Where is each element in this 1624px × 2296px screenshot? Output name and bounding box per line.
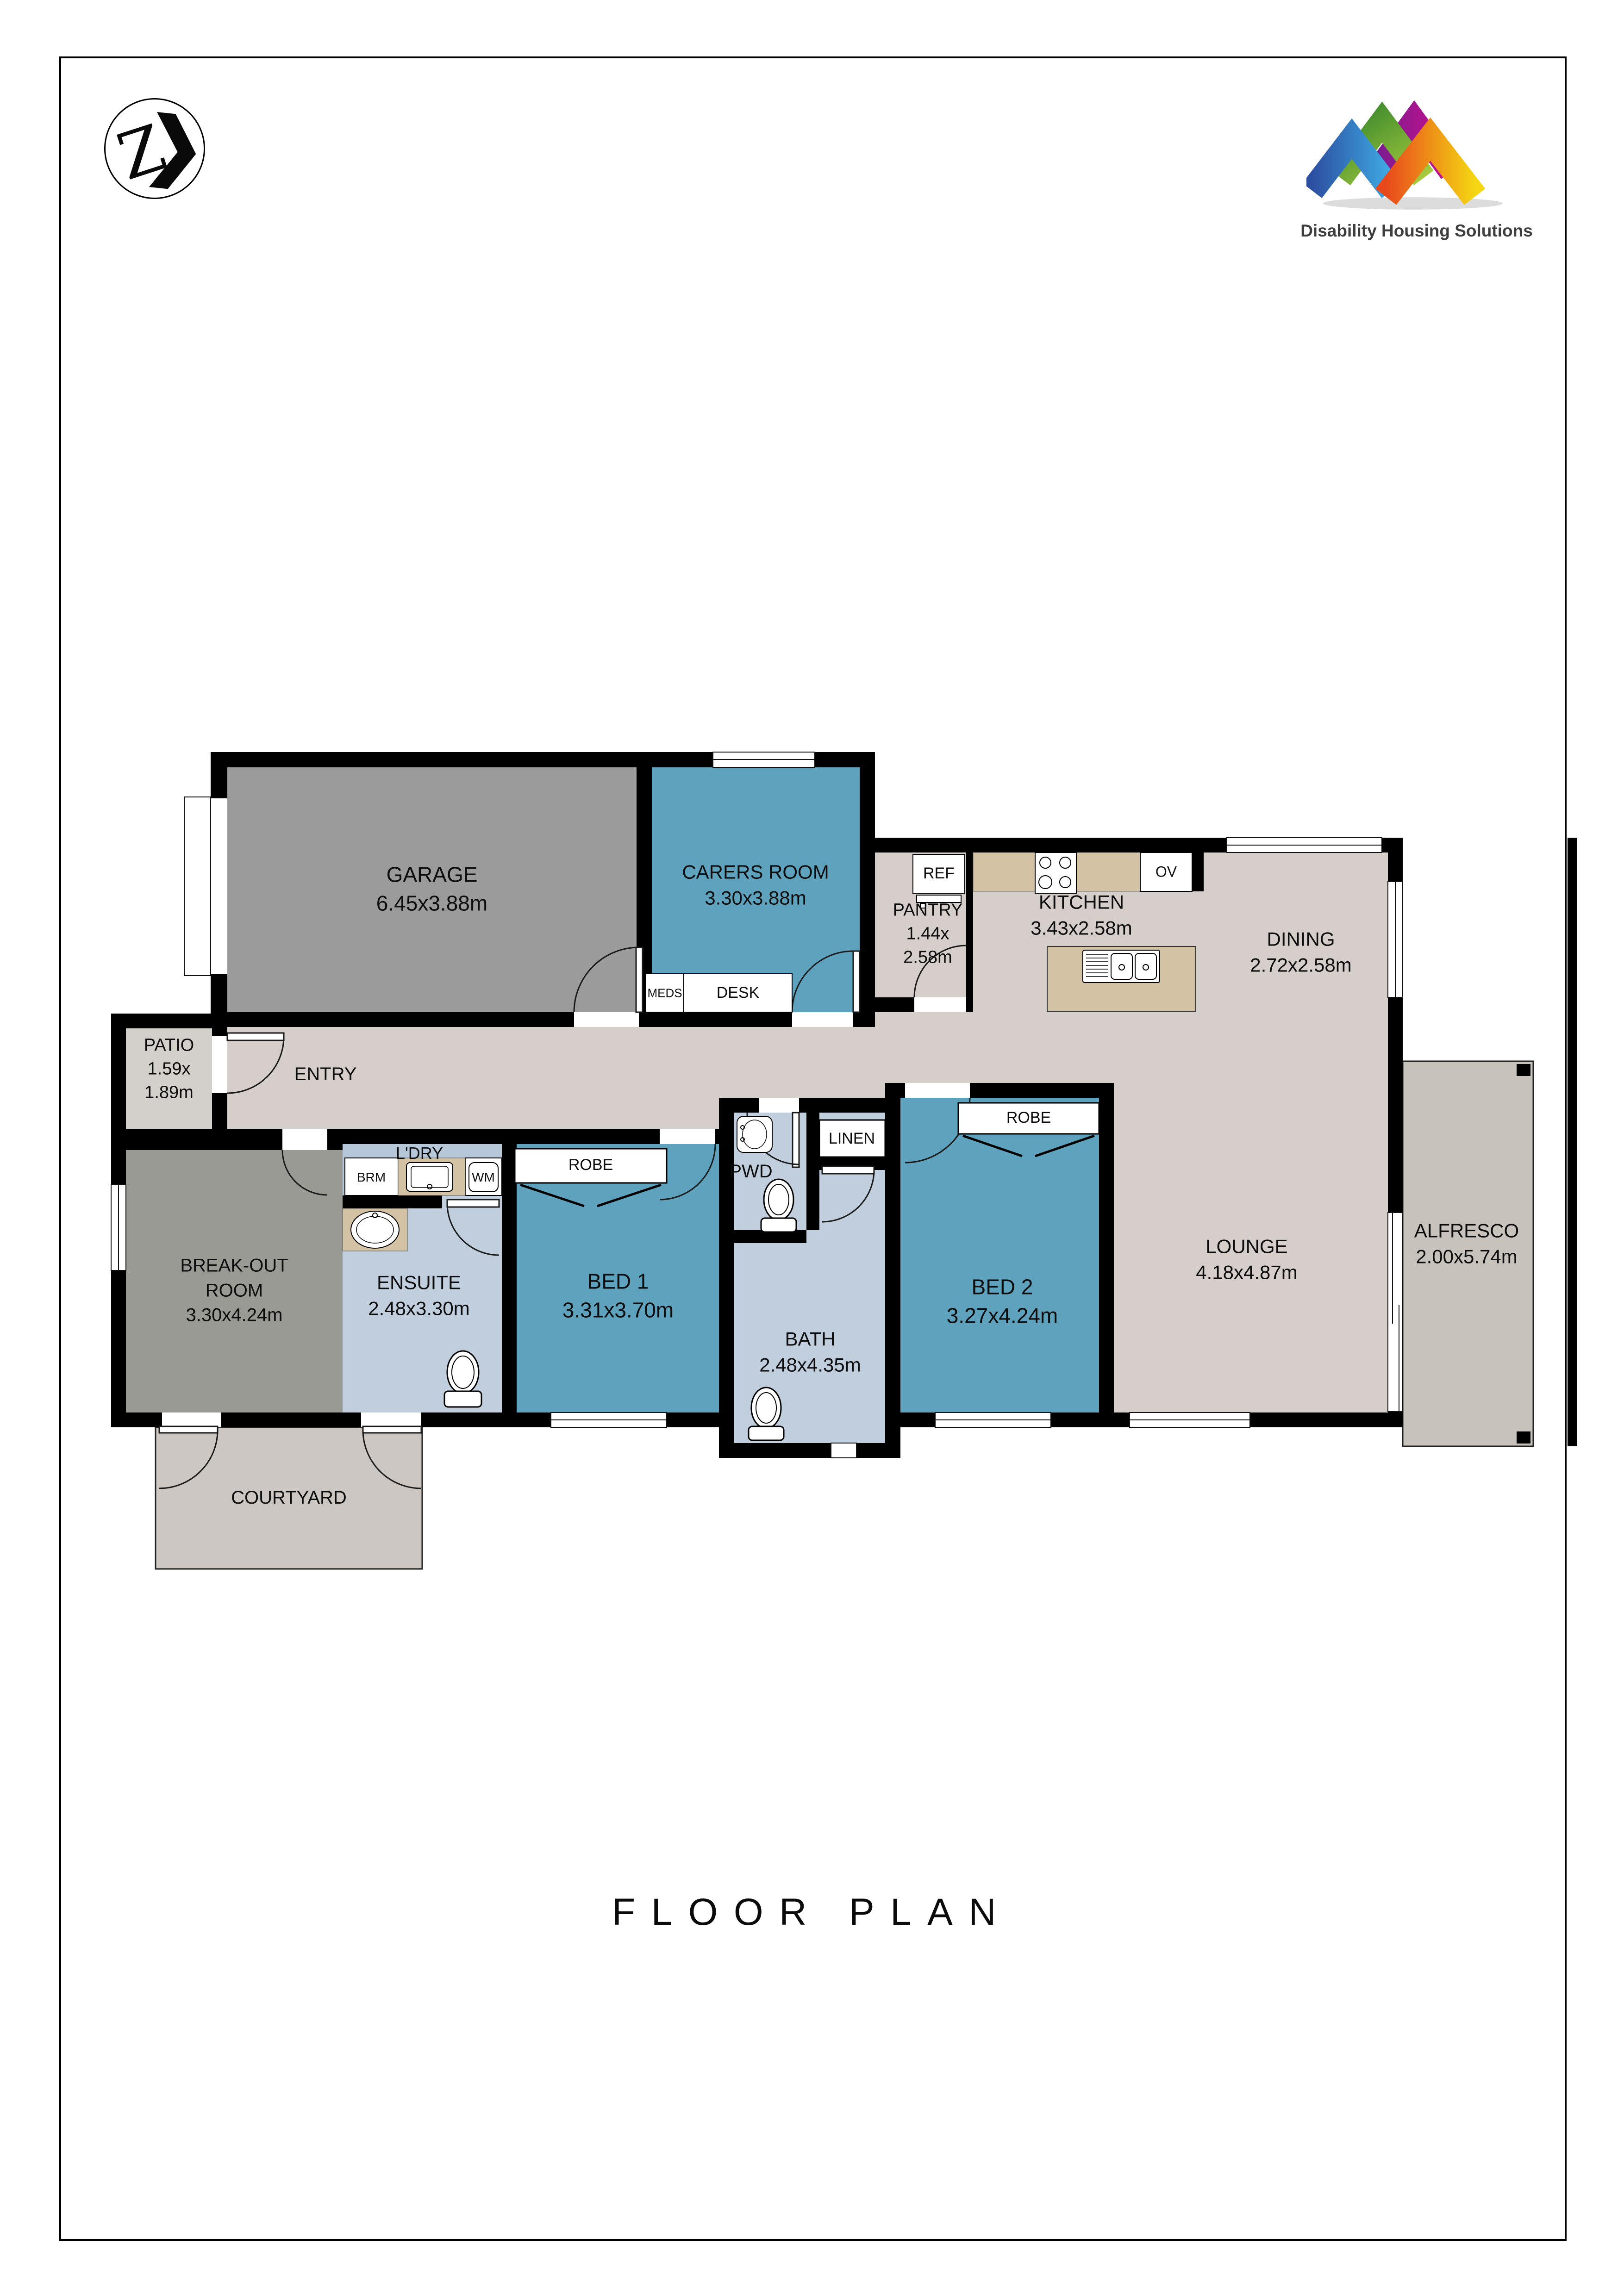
- sliding-door: [1388, 1213, 1403, 1412]
- room-label-garage: GARAGE6.45x3.88m: [376, 860, 487, 917]
- room-label-courtyard: COURTYARD: [231, 1486, 347, 1511]
- toilet-icon: [761, 1179, 796, 1232]
- room-label-breakout: BREAK-OUT ROOM3.30x4.24m: [180, 1254, 288, 1328]
- robe-label-bed1: ROBE: [568, 1155, 613, 1176]
- room-label-patio: PATIO1.59x 1.89m: [144, 1034, 194, 1105]
- room-label-entry: ENTRY: [294, 1062, 357, 1087]
- room-label-ensuite: ENSUITE2.48x3.30m: [368, 1270, 469, 1322]
- room-label-pantry: PANTRY1.44x 2.58m: [893, 899, 963, 970]
- sink-icon: [1083, 950, 1160, 983]
- room-label-carers: CARERS ROOM3.30x3.88m: [682, 859, 829, 912]
- washer-label: WM: [472, 1169, 495, 1186]
- room-label-dining: DINING2.72x2.58m: [1250, 927, 1351, 979]
- room-label-lounge: LOUNGE4.18x4.87m: [1196, 1234, 1297, 1286]
- toilet-icon: [444, 1351, 481, 1407]
- meds-label: MEDS: [647, 985, 682, 1002]
- room-label-laundry: L'DRY: [396, 1142, 443, 1164]
- room-label-bath: BATH2.48x4.35m: [759, 1326, 861, 1379]
- boundary-line: [1568, 838, 1577, 1446]
- robe-label-bed2: ROBE: [1006, 1108, 1051, 1129]
- bath-fixtures: [749, 1388, 784, 1440]
- room-label-bed2: BED 23.27x4.24m: [947, 1273, 1058, 1330]
- room-label-pwd: PWD: [729, 1159, 772, 1184]
- broom-label: BRM: [357, 1169, 386, 1186]
- room-label-kitchen: KITCHEN3.43x2.58m: [1031, 890, 1132, 942]
- floor-plan-drawing: [0, 0, 1624, 2296]
- room-label-alfresco: ALFRESCO2.00x5.74m: [1414, 1218, 1519, 1270]
- room-label-linen: LINEN: [829, 1128, 875, 1150]
- toilet-icon: [749, 1388, 784, 1440]
- room-label-bed1: BED 13.31x3.70m: [562, 1267, 674, 1324]
- garage-door-panel: [184, 797, 211, 976]
- fridge-label: REF: [923, 863, 955, 884]
- desk-label: DESK: [717, 983, 760, 1004]
- page: Z ❯ Disability Housing Solutions: [0, 0, 1624, 2296]
- oven-label: OV: [1156, 862, 1177, 882]
